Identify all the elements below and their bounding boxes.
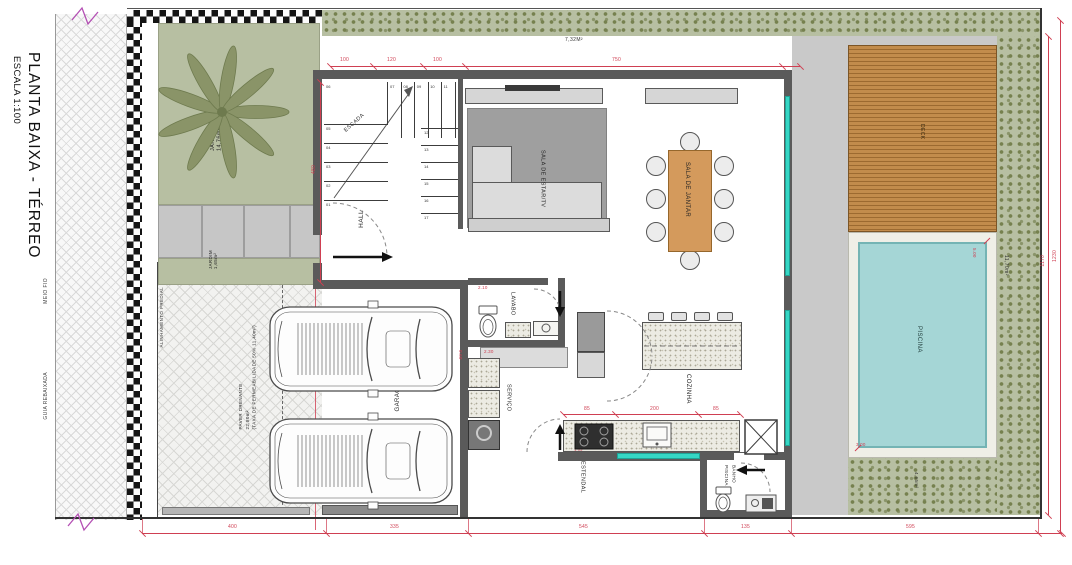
- stair-step-number: 16: [424, 198, 428, 203]
- dim-extension: [326, 519, 327, 533]
- bar-stool: [648, 312, 664, 321]
- dim-extension: [142, 519, 143, 533]
- dining-chair: [680, 132, 700, 152]
- stair-step: 08: [402, 82, 415, 138]
- stair-step: 05: [324, 124, 388, 143]
- stair-step: 07: [389, 82, 402, 138]
- stair-step-number: 01: [326, 202, 330, 207]
- sink-icon: [746, 495, 776, 512]
- shaft-x-box: [745, 420, 777, 454]
- break-mark-icon: [68, 514, 94, 530]
- stair-landing: 06: [324, 82, 388, 124]
- stair-step-number: 12: [424, 130, 428, 135]
- stair-step-number: 09: [417, 84, 421, 89]
- toilet-icon: [479, 306, 550, 337]
- dining-label: SALA DE JANTAR: [683, 162, 690, 217]
- bar-stool: [717, 312, 733, 321]
- bar-stool: [694, 312, 710, 321]
- dining-chair: [714, 222, 734, 242]
- dining-chair: [714, 156, 734, 176]
- stair-step: 03: [324, 162, 388, 181]
- car-icon: [270, 413, 452, 509]
- dining-chair: [680, 250, 700, 270]
- dim-extension: [468, 519, 469, 533]
- stair-step: 02: [324, 181, 388, 200]
- pool-dim-ticks: [855, 238, 990, 451]
- stair-step-number: 10: [430, 84, 434, 89]
- stair-step: 14: [421, 162, 458, 179]
- stair-step-number: 15: [424, 181, 428, 186]
- stair-step-number: 06: [326, 84, 330, 89]
- stair-step: 12: [421, 128, 458, 145]
- stair-step-number: 11: [444, 84, 448, 89]
- dining-chair: [646, 189, 666, 209]
- drying-door: [527, 419, 565, 452]
- palm-tree-icon: [157, 45, 289, 179]
- stair-step-number: 03: [326, 164, 330, 169]
- dining-chair: [646, 222, 666, 242]
- lavabo-door: [534, 289, 565, 317]
- dining-table: [668, 150, 712, 252]
- dim-extension: [704, 519, 705, 533]
- stair-step: 15: [421, 179, 458, 196]
- stair-step: 16: [421, 196, 458, 213]
- stair-step-number: 08: [403, 84, 407, 89]
- kitchen-sink-icon: [643, 423, 671, 447]
- dim-extension: [791, 519, 792, 533]
- break-mark-icon: [72, 8, 98, 24]
- cooktop-icon: [575, 424, 613, 449]
- stair-step: 17: [421, 213, 458, 230]
- toilet-icon: [716, 487, 731, 512]
- stair-step: 01: [324, 200, 388, 219]
- stair-step-number: 07: [390, 84, 394, 89]
- pool-bath-door: [736, 463, 770, 492]
- car-icon: [270, 301, 452, 397]
- stair-step-number: 14: [424, 164, 428, 169]
- stair-step-number: 04: [326, 145, 330, 150]
- stair-step-number: 13: [424, 147, 428, 152]
- dining-chair: [646, 156, 666, 176]
- stair-step-number: 05: [326, 126, 330, 131]
- floor-plan-canvas: PLANTA BAIXA - TÉRREO ESCALA 1:100 MEIO …: [0, 0, 1072, 565]
- stair-step: 13: [421, 145, 458, 162]
- dining-chair: [714, 189, 734, 209]
- dim-extension: [1038, 519, 1039, 533]
- kitchen-door-arcs: [607, 311, 652, 401]
- plan-overlay: [0, 0, 1072, 565]
- stair-step-number: 17: [424, 215, 428, 220]
- stair-step: 04: [324, 143, 388, 162]
- stair-step-number: 02: [326, 183, 330, 188]
- bar-stool: [671, 312, 687, 321]
